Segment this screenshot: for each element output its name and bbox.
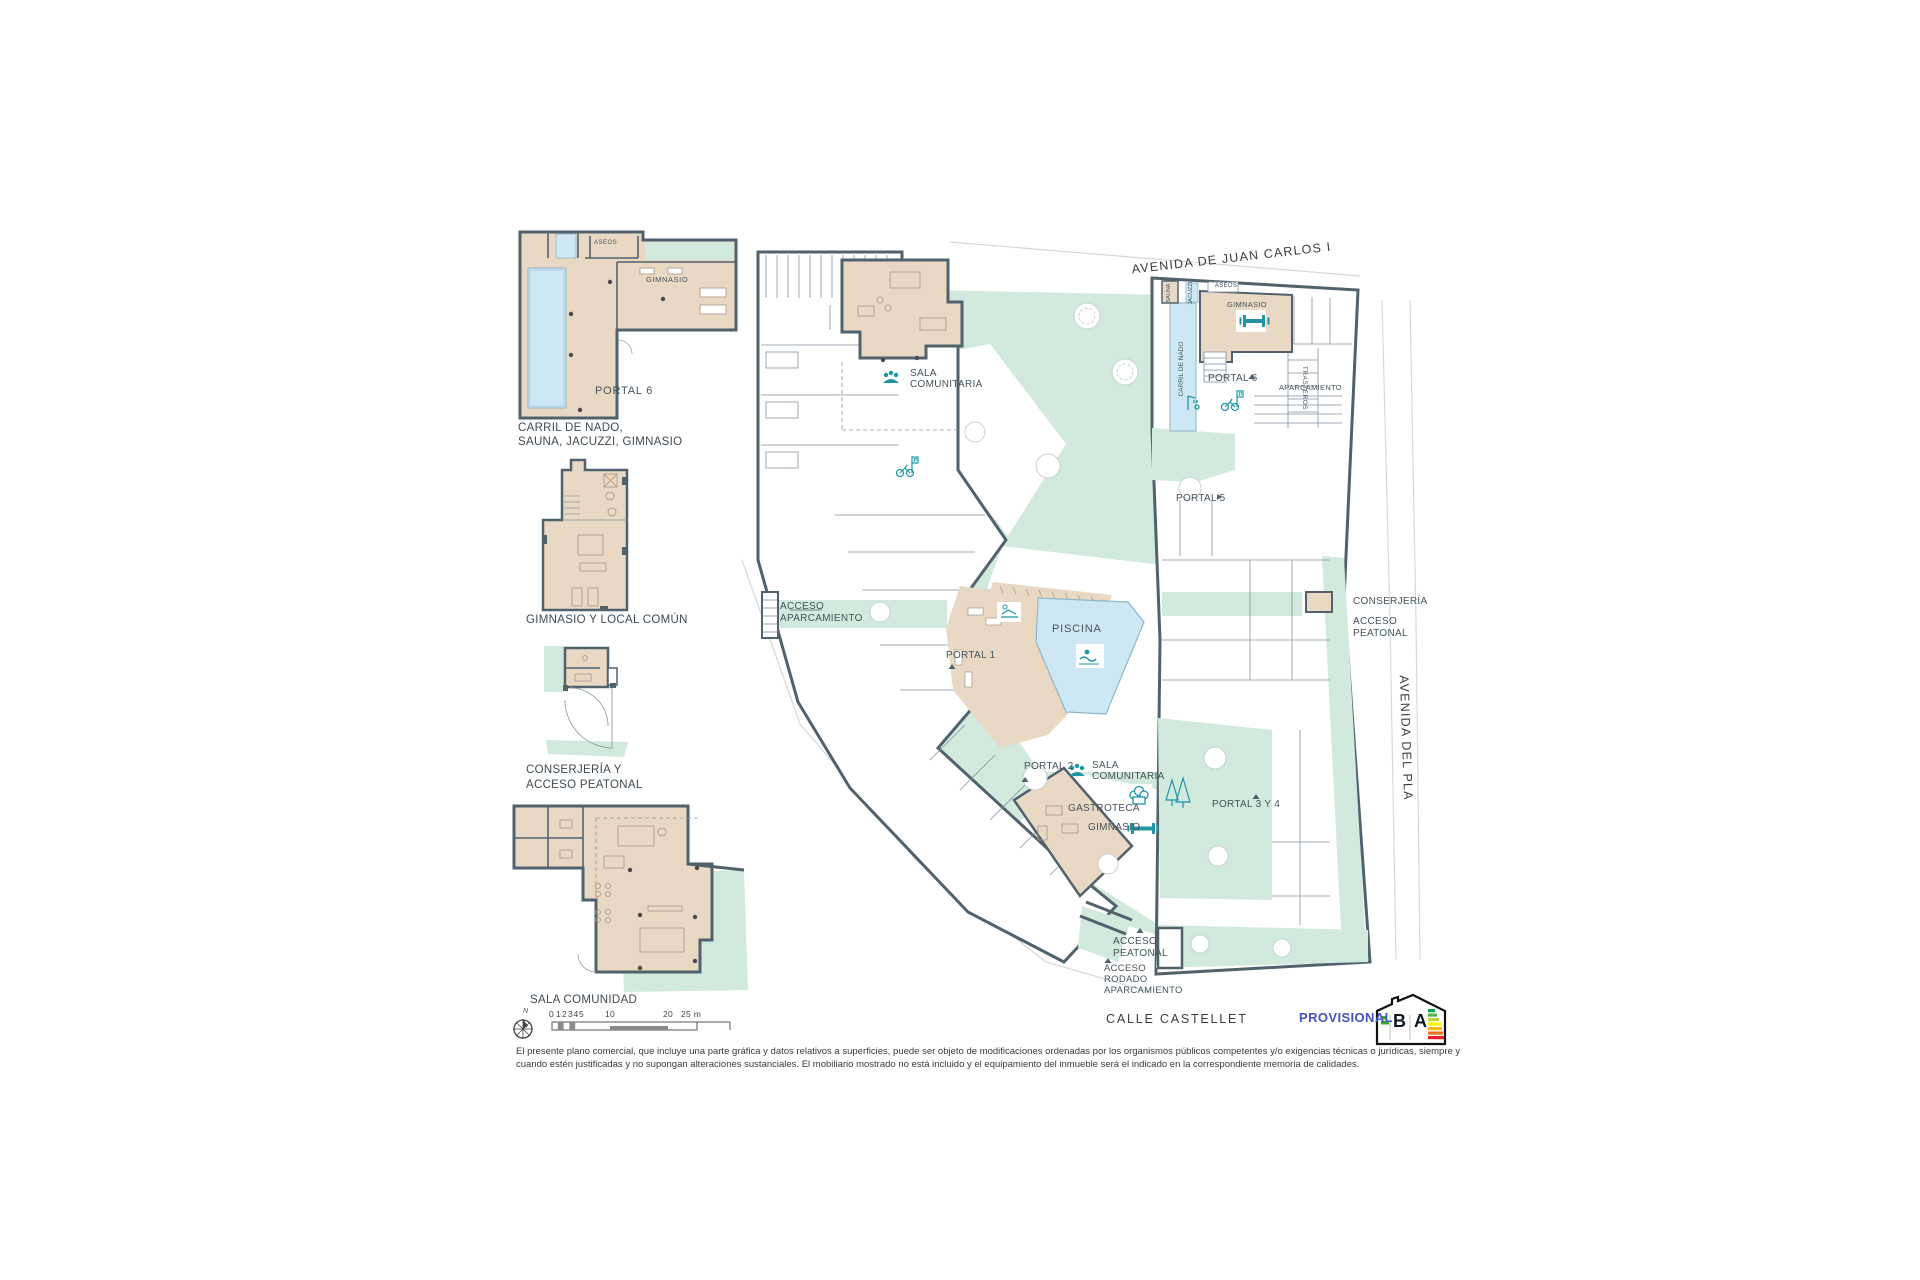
disclaimer-line1: El presente plano comercial, que incluye… [516,1046,1460,1059]
acceso-peatonal-south-line2: PEATONAL [1113,948,1168,959]
portal-2-label: PORTAL 2 [1024,761,1073,772]
scale-tick-3: 3 [568,1009,573,1020]
d3-caption-line2: ACCESO PEATONAL [526,779,643,792]
d1-portal6-label: PORTAL 6 [595,386,653,397]
street-calle-castellet: CALLE CASTELLET [1106,1014,1248,1025]
d1-caption-line2: SAUNA, JACUZZI, GIMNASIO [518,436,682,449]
piscina-label: PISCINA [1052,624,1102,635]
scale-tick-2: 2 [562,1009,567,1020]
provisional-badge: PROVISIONAL [1299,1012,1393,1023]
gastroteca-label: GASTROTECA [1068,803,1140,814]
scale-tick-0: 0 [549,1009,554,1020]
acceso-aparcamiento-label-line2: APARCAMIENTO [780,613,863,624]
d2-caption: GIMNASIO Y LOCAL COMÚN [526,614,688,627]
scale-tick-20: 20 [663,1009,673,1020]
aseos-ne-label: ASEOS [1215,283,1237,290]
scale-bar [552,1022,730,1030]
acceso-peatonal-east-line1: ACCESO [1353,616,1397,627]
scale-tick-25m: 25 m [681,1009,701,1020]
gimnasio-ne-label: GIMNASIO [1227,301,1267,309]
scale-tick-5: 5 [579,1009,584,1020]
conserjeria-building [1306,592,1332,612]
acceso-rodado-line1: ACCESO [1104,964,1146,975]
acceso-rodado-line2: RODADO [1104,975,1148,986]
detail-plan-sala-comunidad [514,806,748,992]
ne-sauna-label: SAUNA [1166,283,1172,302]
compass-north-letter: N [523,1006,528,1017]
energy-rating-letter-a: A [1414,1012,1427,1030]
ne-jacuzzi-label: JACUZZI [1188,281,1194,304]
detail-plan-gimnasio-local [543,460,627,610]
acceso-peatonal-south-line1: ACCESO [1113,936,1157,947]
disclaimer-line2: cuando estén justificadas y no supongan … [516,1059,1359,1072]
portal-6-main-label: PORTAL 6 [1208,373,1257,384]
d4-caption: SALA COMUNIDAD [530,994,637,1007]
portal-3-4-label: PORTAL 3 Y 4 [1212,799,1280,810]
d1-gimnasio-label: GIMNASIO [646,276,688,284]
ne-carril-de-nado-label: CARRIL DE NADO [1178,341,1185,396]
site-plan-drawing: AVENIDA DE JUAN CARLOS I AVENIDA DEL PLA… [0,0,1920,1280]
gimnasio-center-label: GIMNASIO [1088,822,1140,833]
sala-comunitaria-center-label-line2: COMUNITARIA [1092,771,1165,782]
scale-tick-10: 10 [605,1009,615,1020]
floor-plan-page: AVENIDA DE JUAN CARLOS I AVENIDA DEL PLA… [0,0,1920,1280]
aparcamiento-label: APARCAMIENTO [1279,384,1342,392]
acceso-aparcamiento-label-line1: ACCESO [780,601,824,612]
acceso-peatonal-east-line2: PEATONAL [1353,628,1408,639]
bike-flag-letter: P [914,458,918,464]
sala-comunitaria-top-label-line1: SALA [910,368,937,379]
detail-plan-conserjeria [544,646,628,757]
portal-1-label: PORTAL 1 [946,650,995,661]
compass-icon [513,1019,533,1039]
energy-rating-letter-b: B [1393,1012,1406,1030]
d1-aseos-label: ASEOS [594,240,617,247]
acceso-rodado-line3: APARCAMIENTO [1104,986,1183,997]
d1-caption-line1: CARRIL DE NADO, [518,422,623,435]
conserjeria-label: CONSERJERÍA [1353,596,1427,607]
sala-comunitaria-top-label-line2: COMUNITARIA [910,379,983,390]
sala-comunitaria-center-label-line1: SALA [1092,760,1119,771]
scale-tick-4: 4 [574,1009,579,1020]
portal-5-label: PORTAL 5 [1176,493,1225,504]
bike-flag-letter: P [1239,392,1243,398]
d3-caption-line1: CONSERJERÍA Y [526,764,622,777]
street-avenida-del-pla: AVENIDA DEL PLA [1397,675,1415,801]
scale-tick-1: 1 [556,1009,561,1020]
